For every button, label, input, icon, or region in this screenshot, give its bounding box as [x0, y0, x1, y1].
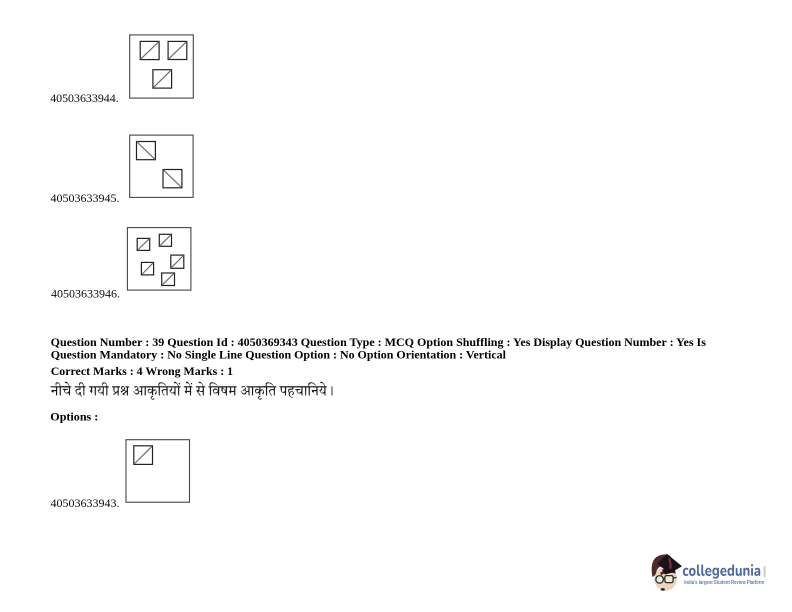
svg-text:Options :: Options : [50, 409, 98, 423]
svg-text:40503633944.: 40503633944. [50, 91, 119, 105]
svg-text:40503633946.: 40503633946. [51, 287, 120, 301]
svg-text:Question Mandatory : No Single: Question Mandatory : No Single Line Ques… [51, 347, 507, 361]
svg-text:40503633943.: 40503633943. [51, 496, 120, 510]
svg-text:Correct Marks : 4 Wrong Marks: Correct Marks : 4 Wrong Marks : 1 [51, 364, 233, 378]
svg-text:40503633945.: 40503633945. [51, 191, 120, 205]
svg-text:India's largest Student Review: India's largest Student Review Platform [684, 580, 764, 586]
